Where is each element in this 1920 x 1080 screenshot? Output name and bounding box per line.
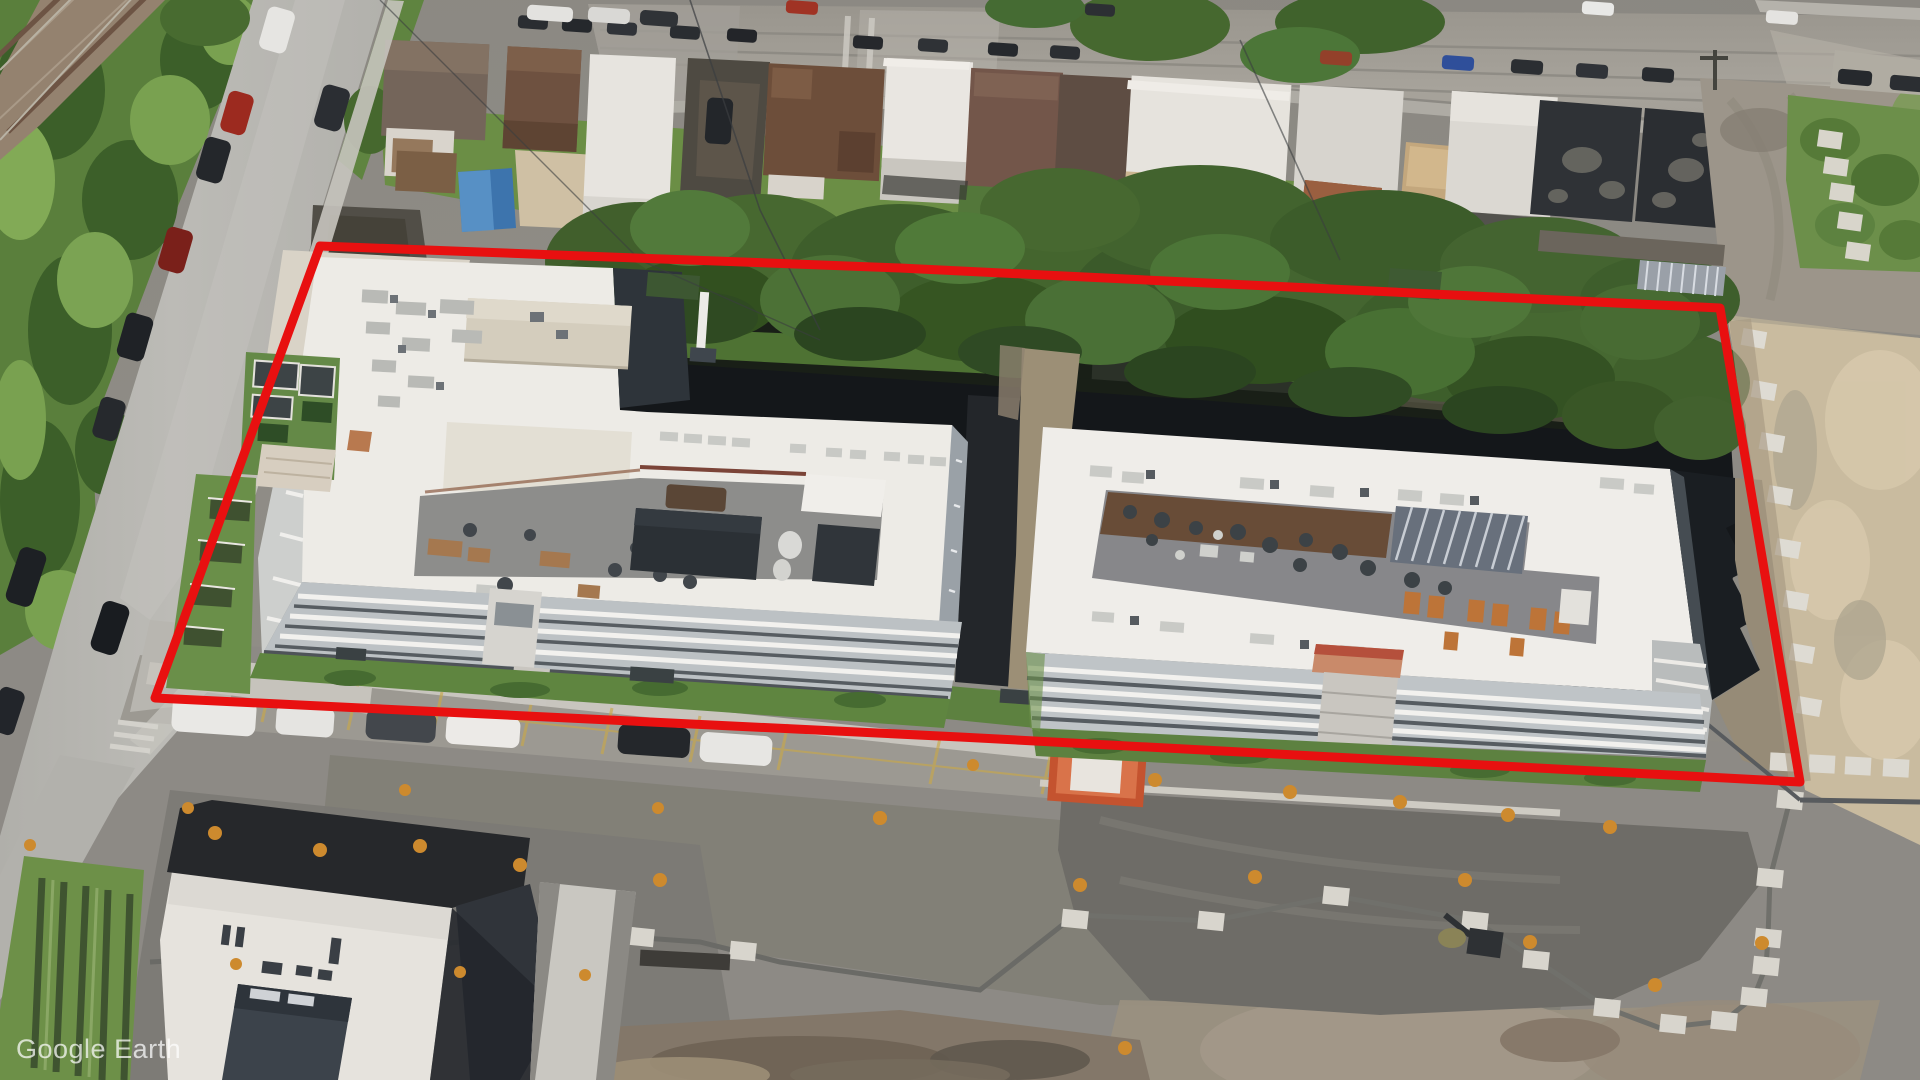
svg-text:Google Earth: Google Earth (16, 1034, 181, 1064)
